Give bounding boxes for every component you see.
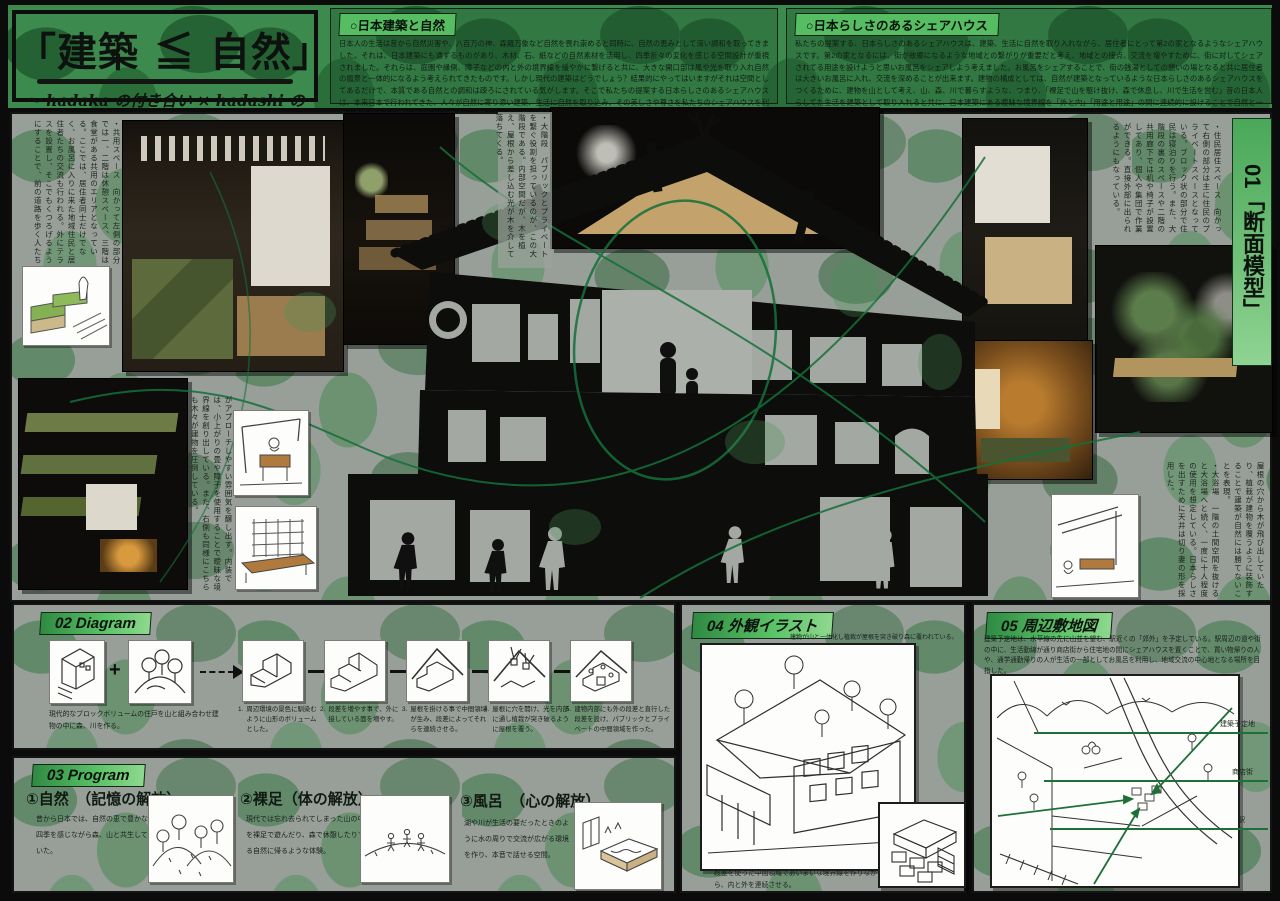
caption-common-space: ・共用スペース 向かって左側の部分では一、二階は休憩スペース、三階は食堂がある共… <box>16 120 122 270</box>
section-03-panel: 03 Program ①自然 （記憶の解放） 昔から日本では、自然の恵で豊かな四… <box>12 756 676 893</box>
map-leader-line <box>1044 780 1268 782</box>
program-2-body: 現代では忘れ去られてしまった山の中を裸足で遊んだり、森で休憩したりする自然に帰る… <box>246 812 368 860</box>
diagram-base-caption: 現代的なブロックボリュームの住戸を山と組み合わせ建物の中に森、川を作る。 <box>49 709 225 732</box>
diagram-step-caption: 1.周辺環境の景色に馴染むように山形のボリュームとした。 <box>238 705 320 735</box>
title-block: 「建築 ≦ 自然」 〜 hadaka の付き合い × hadashi の付き合い… <box>12 10 318 102</box>
caption-bath-block: 屋根の穴から木が飛び出していたり、植栽が建物を覆うように装飾することで建築が自然… <box>1133 462 1266 598</box>
section-02-label: 02 Diagram <box>39 612 151 635</box>
caption-bath: ・大浴場 一階の土間空間を抜けると大浴場へと続く、一度に十人程度の使用を想定して… <box>1165 462 1221 598</box>
sketch-grass-steps <box>22 266 110 346</box>
plus-icon: + <box>109 659 121 682</box>
diagram-step-caption: 3.屋根を掛ける事で中間領域が生み、段差によってそれらを連続させる。 <box>402 705 488 735</box>
brush-underline <box>37 79 293 84</box>
caption-nature: 屋根の穴から木が飛び出していたり、植栽が建物を覆うように装飾することで建築が自然… <box>1221 462 1266 598</box>
sketch-step-5 <box>570 640 632 702</box>
sketch-block-building <box>49 640 105 704</box>
section-02-panel: 02 Diagram + <box>12 603 676 750</box>
step-num: 1. <box>238 705 243 735</box>
program-1-body: 昔から日本では、自然の恵で豊かな四季を感じながら森、山と共生していた。 <box>36 812 154 860</box>
map-leader-line <box>1050 828 1268 830</box>
step-text: 周辺環境の景色に馴染むように山形のボリュームとした。 <box>246 705 320 735</box>
intro-right-heading: ○日本らしさのあるシェアハウス <box>794 13 999 36</box>
dashed-arrow-icon <box>200 671 234 673</box>
caption-grand-stairs: ・大階段 パブリックとプライベートを繋ぐ役割を担っているのが、この大階段である。… <box>498 112 552 268</box>
sketch-roof-bench <box>1051 494 1139 598</box>
diagram-step-caption: 5.建物内部にも外の段差と直行した段差を設け、パブリックとプライベートの中間領域… <box>566 705 674 735</box>
step-num: 3. <box>402 705 407 735</box>
sketch-hills-trees <box>148 795 234 883</box>
step-text: 建物内部にも外の段差と直行した段差を設け、パブリックとプライベートの中間領域を作… <box>574 705 674 735</box>
sketch-lattice-platform <box>235 506 317 590</box>
step-text: 屋根を掛ける事で中間領域が生み、段差によってそれらを連続させる。 <box>410 705 488 735</box>
section-05-panel: 05 周辺敷地図 建築予定地は、水平線の先に山並を望む、駅近くの「郊外」を予定し… <box>972 603 1272 893</box>
poster-title: 「建築 ≦ 自然」 <box>16 20 314 78</box>
step-num: 2. <box>320 705 325 725</box>
sketch-hill-figures <box>360 795 450 883</box>
poster-board: 「建築 ≦ 自然」 〜 hadaka の付き合い × hadashi の付き合い… <box>0 0 1280 901</box>
map-label-site: 建築予定地 <box>1220 719 1255 729</box>
section-01-label: 01「断面模型」 <box>1232 118 1272 366</box>
exterior-caption-top: 建物が山と一体化し植栽が屋根を突き破り森に覆われている。 <box>790 632 962 641</box>
map-leader-line <box>1034 732 1268 734</box>
intro-japan-architecture: ○日本建築と自然 日本人の生活は昔から自然災害や、八百万の神、森羅万象など自然を… <box>330 8 778 104</box>
exterior-inset-blocks <box>878 802 966 888</box>
sketch-bath <box>574 802 662 890</box>
sketch-bench-under-roof <box>233 410 309 496</box>
step-num: 5. <box>566 705 571 735</box>
intro-sharehouse: ○日本らしさのあるシェアハウス 私たちの提案する、日本らしさのあるシェアハウスは… <box>786 8 1272 104</box>
step-num: 4. <box>484 705 489 735</box>
step-text: 屋根に穴を開け、光を内部に通し植栽が突き破るように屋根を覆う。 <box>492 705 570 735</box>
sketch-step-3 <box>406 640 468 702</box>
map-label-station: 駅 <box>1238 815 1245 825</box>
sketch-step-4 <box>488 640 550 702</box>
diagram-step-caption: 2.段差を増やす事で、外に接している面を増やす。 <box>320 705 402 725</box>
sketch-mountain <box>128 640 192 704</box>
section-04-panel: 04 外観イラスト 建物が山と一体化し植栽が屋根を突き破り森に覆われている。 <box>680 603 966 893</box>
caption-resident-space: ・住民居住スペース 向かって右側の部分は主に住民のプライベートスペースとなってい… <box>1097 123 1223 241</box>
caption-approach: がアプローチしやすい雰囲気を醸し出す。内装では、小上がりの畳や障子を使用すること… <box>190 396 234 596</box>
sketch-step-1 <box>242 640 304 702</box>
diagram-step-caption: 4.屋根に穴を開け、光を内部に通し植栽が突き破るように屋根を覆う。 <box>484 705 570 735</box>
map-label-shops: 商店街 <box>1232 767 1253 777</box>
step-text: 段差を増やす事で、外に接している面を増やす。 <box>328 705 402 725</box>
exterior-caption-bottom: 段差を使った中間領域であいまいな境界線を作りながら、内と外を連続させる。 <box>714 868 882 891</box>
sketch-step-2 <box>324 640 386 702</box>
intro-left-heading: ○日本建築と自然 <box>338 13 456 36</box>
section-03-label: 03 Program <box>31 764 145 787</box>
program-3-body: 湖や川が生活の要だったときのように水の周りで交流が広がる環境を作り、本音で話せる… <box>464 816 574 864</box>
program-2-heading: ②裸足（体の解放） <box>240 788 373 809</box>
sitemap-body: 建築予定地は、水平線の先に山並を望む、駅近くの「郊外」を予定している。駅周辺の道… <box>984 635 1266 677</box>
